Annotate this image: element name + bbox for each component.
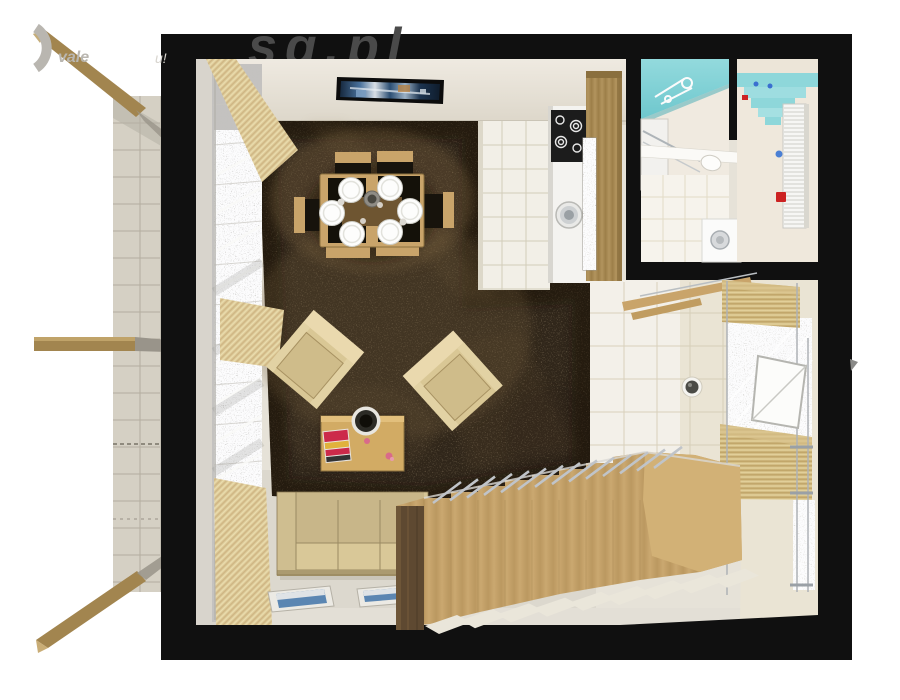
svg-text:vale: vale [58, 49, 89, 66]
svg-text:u!: u! [155, 50, 167, 66]
